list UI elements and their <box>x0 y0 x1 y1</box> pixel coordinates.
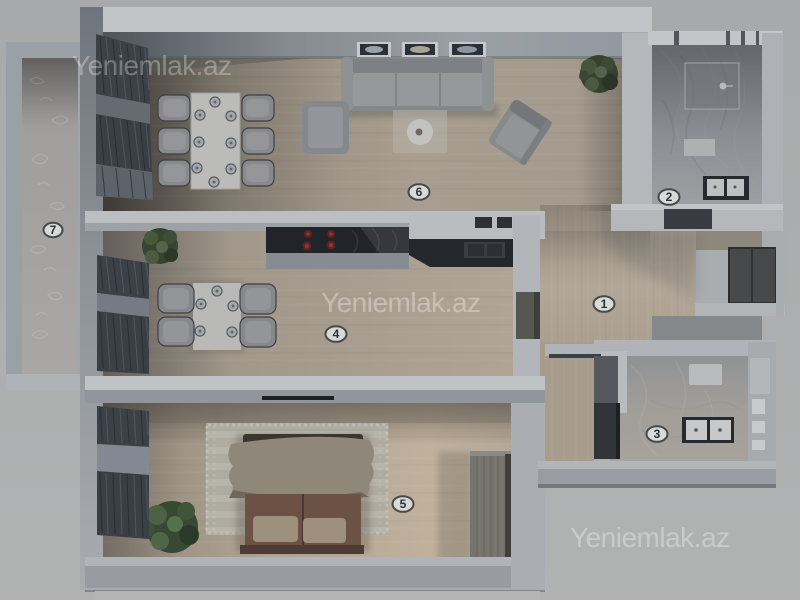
svg-text:Yeniemlak.az: Yeniemlak.az <box>321 287 481 318</box>
svg-text:4: 4 <box>333 327 340 341</box>
svg-text:1: 1 <box>601 297 608 311</box>
svg-text:Yeniemlak.az: Yeniemlak.az <box>72 50 232 81</box>
svg-text:Yeniemlak.az: Yeniemlak.az <box>570 522 730 553</box>
svg-text:5: 5 <box>400 497 407 511</box>
svg-text:7: 7 <box>50 223 57 237</box>
svg-text:3: 3 <box>654 427 661 441</box>
svg-text:6: 6 <box>416 185 423 199</box>
svg-text:2: 2 <box>666 190 673 204</box>
